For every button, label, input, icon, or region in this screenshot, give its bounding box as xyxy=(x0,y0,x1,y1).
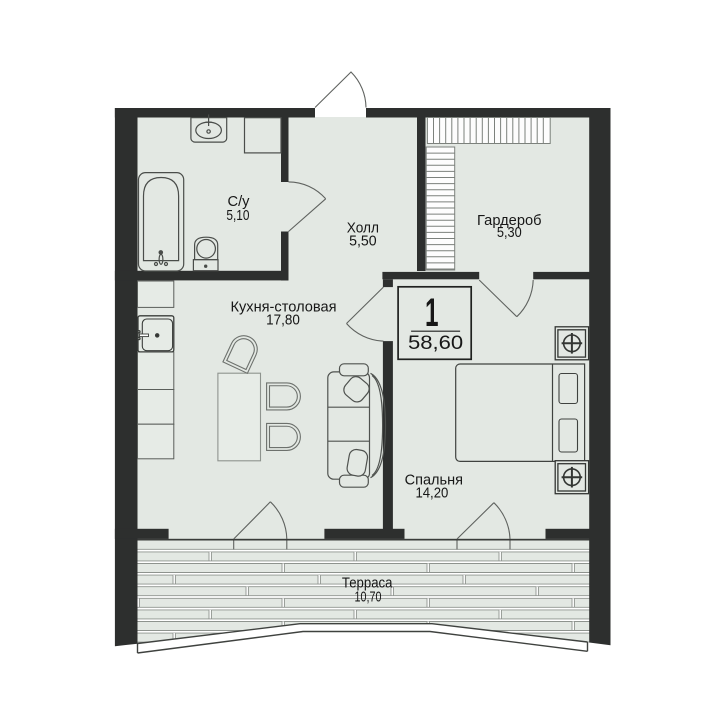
svg-text:17,80: 17,80 xyxy=(266,311,300,328)
svg-text:1: 1 xyxy=(425,291,439,335)
svg-text:14,20: 14,20 xyxy=(415,485,448,502)
svg-text:5,30: 5,30 xyxy=(497,224,522,241)
svg-text:5,10: 5,10 xyxy=(226,207,249,224)
svg-text:10,70: 10,70 xyxy=(355,589,382,606)
svg-text:58,60: 58,60 xyxy=(408,333,463,354)
svg-text:5,50: 5,50 xyxy=(349,233,377,250)
